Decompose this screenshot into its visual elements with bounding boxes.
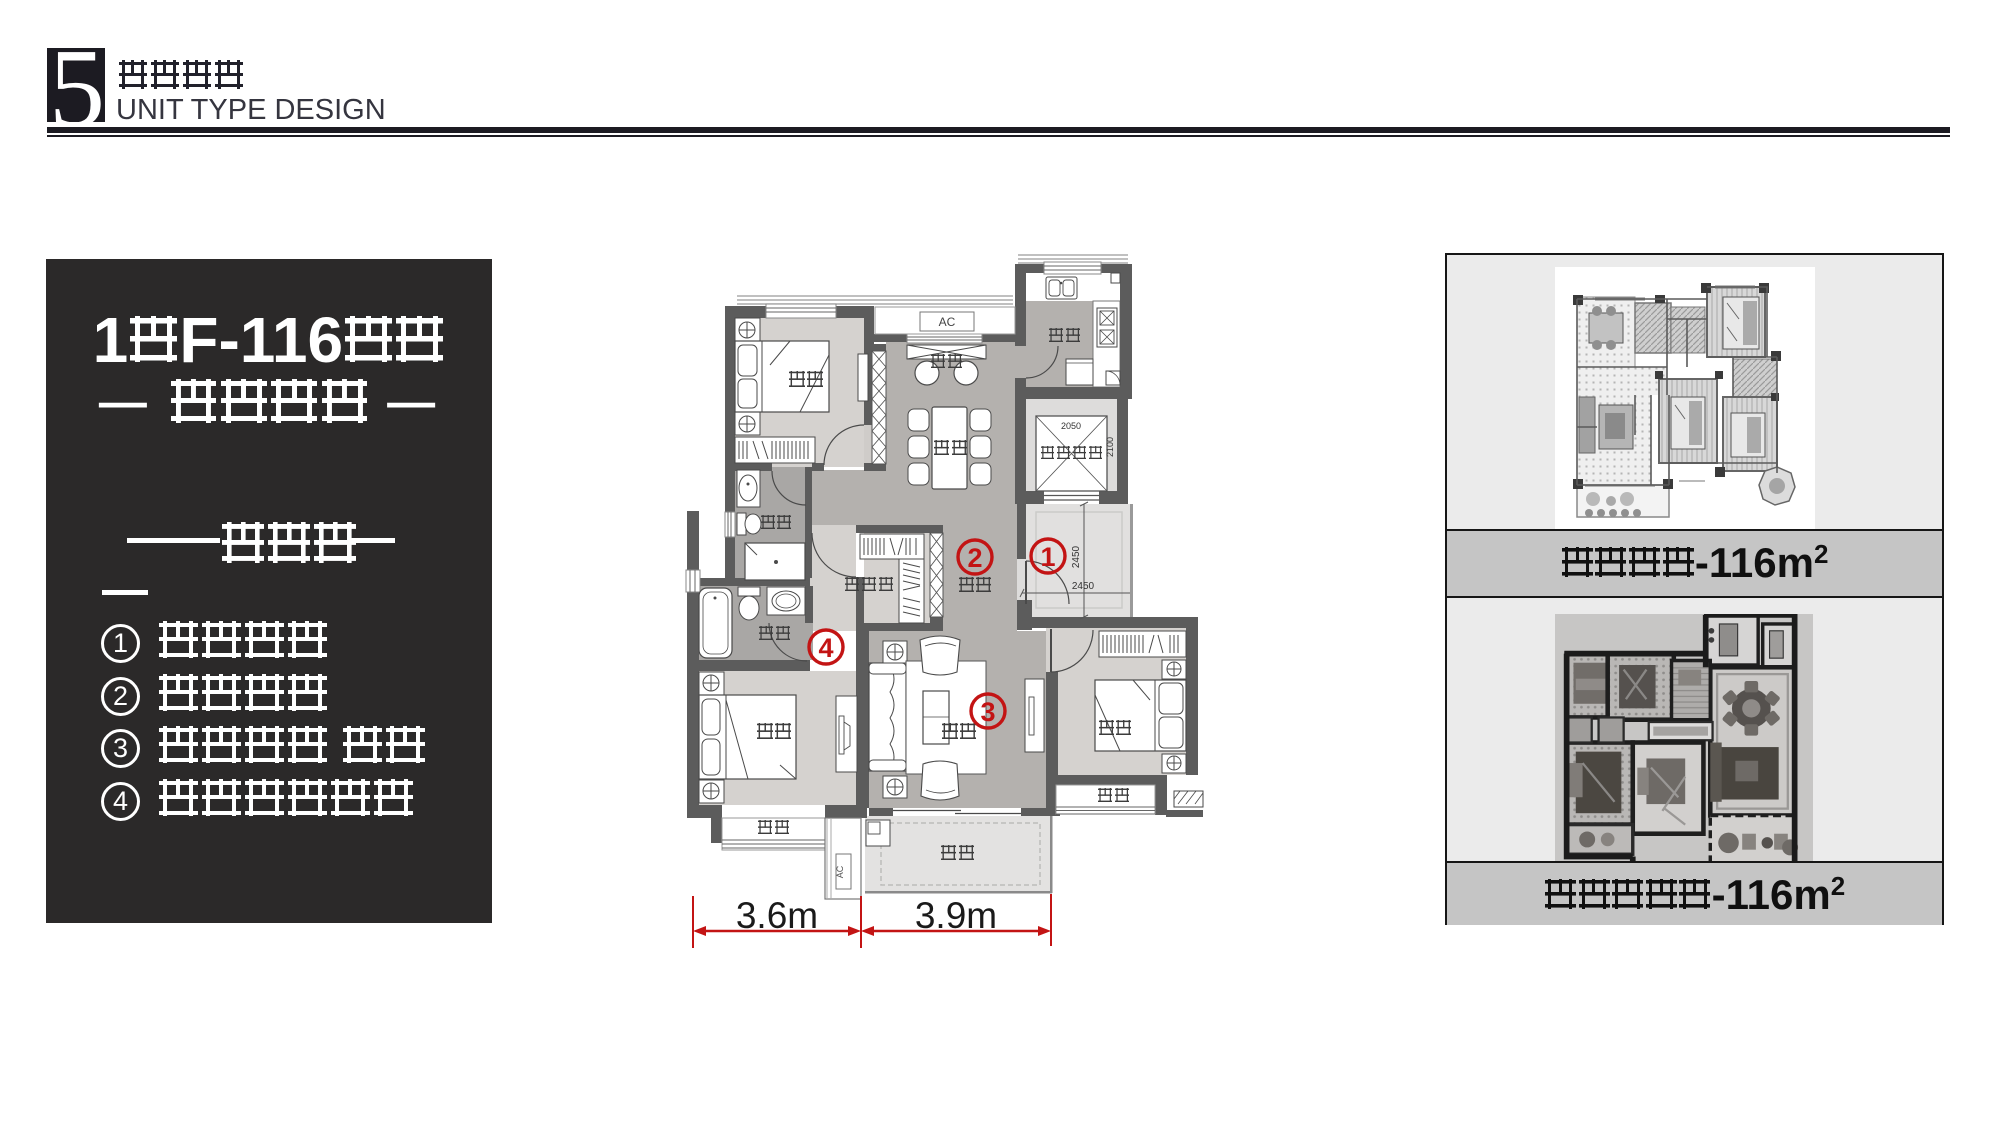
svg-text:3.9m: 3.9m: [915, 895, 997, 936]
svg-text:3: 3: [980, 697, 995, 727]
svg-text:2050: 2050: [1061, 421, 1081, 431]
svg-text:2450: 2450: [1071, 545, 1082, 568]
svg-text:2450: 2450: [1072, 581, 1095, 592]
svg-text:2: 2: [967, 543, 982, 573]
svg-text:AC: AC: [939, 315, 956, 329]
svg-text:3.6m: 3.6m: [736, 895, 818, 936]
svg-text:1: 1: [1040, 542, 1055, 572]
svg-text:AC: AC: [835, 865, 845, 878]
svg-text:4: 4: [818, 633, 833, 663]
svg-text:2100: 2100: [1105, 437, 1115, 457]
